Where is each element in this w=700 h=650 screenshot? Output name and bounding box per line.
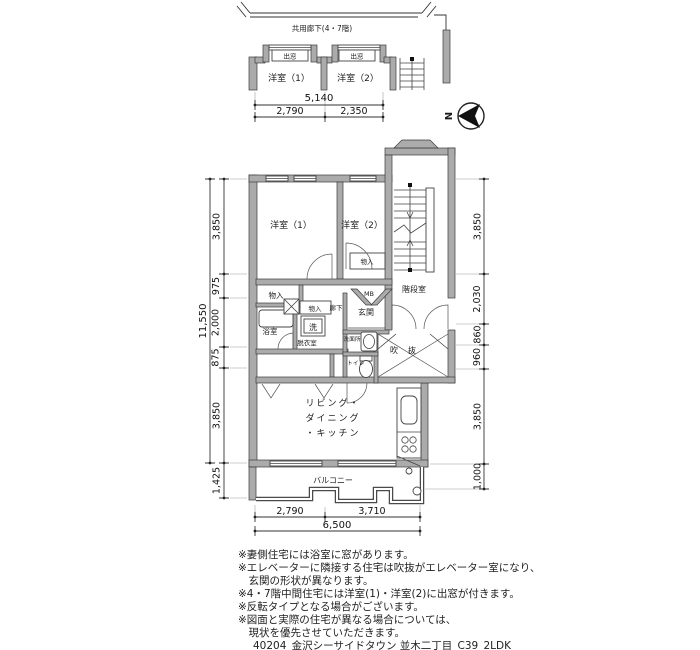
dim-bottom-seg1: 2,790 (276, 506, 303, 517)
dim-top-seg1: 2,790 (276, 106, 303, 117)
drain-pipe (406, 468, 412, 474)
room-label-ldk3: ・キッチン (305, 428, 360, 439)
room-label-balcony: バルコニー (313, 476, 353, 485)
bay-window-1: 出窓 (269, 45, 311, 61)
dim-right-seg4: 960 (472, 348, 483, 366)
sink-fixture (361, 332, 377, 351)
dim-left-total: 11,550 (198, 304, 209, 339)
room-label-dressing: 脱衣室 (297, 338, 317, 347)
room-label-closet-room2: 物入 (361, 257, 375, 266)
kitchen-counter (397, 388, 421, 466)
dim-top-seg2: 2,350 (340, 106, 367, 117)
upper-room-1-label: 洋室（1） (268, 72, 310, 84)
corridor-label: 共用廊下(4・7階) (292, 23, 352, 33)
room-label-toilet: トイレ (347, 361, 365, 367)
dim-left-seg5: 3,850 (212, 402, 223, 429)
bay-window-1-label: 出窓 (284, 52, 298, 61)
dim-left-seg3: 2,000 (211, 309, 222, 336)
dim-right-seg5: 3,850 (473, 403, 484, 430)
upper-room-2-label: 洋室（2） (337, 72, 379, 84)
drawing-title: 40204_金沢シーサイドタウン 並木二丁目_C39_2LDK (253, 639, 512, 650)
room-label-closet-small: 物入 (309, 304, 323, 313)
dim-left-seg1: 3,850 (212, 213, 223, 240)
bay-window-2: 出窓 (338, 45, 380, 61)
room-label-closet-top: 物入 (269, 290, 284, 300)
note-line: ※図面と実際の住宅が異なる場合については、 (238, 613, 456, 626)
note-line: ※反転タイプとなる場合がございます。 (238, 600, 424, 613)
room-label-washroom: 洗面所 (343, 335, 361, 343)
note-line: ※4・7階中間住宅には洋室(1)・洋室(2)に出窓が付きます。 (238, 587, 520, 600)
bay-window-2-label: 出窓 (351, 52, 365, 61)
room-label-western2: 洋室（2） (341, 219, 383, 231)
note-line: ※妻側住宅には浴室に窓があります。 (238, 548, 414, 561)
room-label-mb: MB (364, 290, 374, 298)
dim-bottom-total: 6,500 (323, 520, 352, 531)
dim-left-seg6: 1,425 (212, 467, 223, 494)
dim-right-seg1: 3,850 (473, 213, 484, 240)
room-label-ldk2: ダイニング (305, 412, 360, 424)
dim-right-seg3: 860 (473, 325, 484, 343)
room-label-hallway: 廊下 (330, 303, 344, 312)
dim-right-seg6: 1,000 (473, 463, 484, 490)
north-label: N (444, 112, 455, 120)
floor-plan-page: 共用廊下(4・7階) 出窓 出窓 洋室（1） 洋室（2） (0, 0, 700, 650)
room-label-bathroom: 浴室 (263, 326, 278, 336)
room-label-western1: 洋室（1） (270, 219, 312, 231)
dim-top-total: 5,140 (305, 93, 334, 104)
dim-bottom-seg2: 3,710 (358, 506, 385, 517)
shaft-box (284, 299, 299, 314)
drain-pipe (413, 487, 421, 495)
room-label-washer: 洗 (309, 322, 317, 332)
note-line: ※エレベーターに隣接する住宅は吹抜がエレベーター室になり、 (238, 561, 540, 574)
dim-left-seg4: 875 (211, 348, 222, 366)
room-label-stairhall: 階段室 (402, 284, 426, 294)
floor-plan-canvas: 共用廊下(4・7階) 出窓 出窓 洋室（1） 洋室（2） (0, 0, 700, 650)
note-line: 玄関の形状が異なります。 (238, 574, 373, 587)
dim-left-seg2: 975 (211, 277, 222, 295)
room-label-void: 吹抜 (390, 345, 426, 355)
room-label-entrance: 玄関 (358, 307, 374, 317)
note-line: 現状を優先させていただきます。 (238, 626, 405, 639)
dim-right-seg2: 2,030 (472, 285, 483, 312)
room-label-ldk1: リビング・ (305, 397, 360, 409)
